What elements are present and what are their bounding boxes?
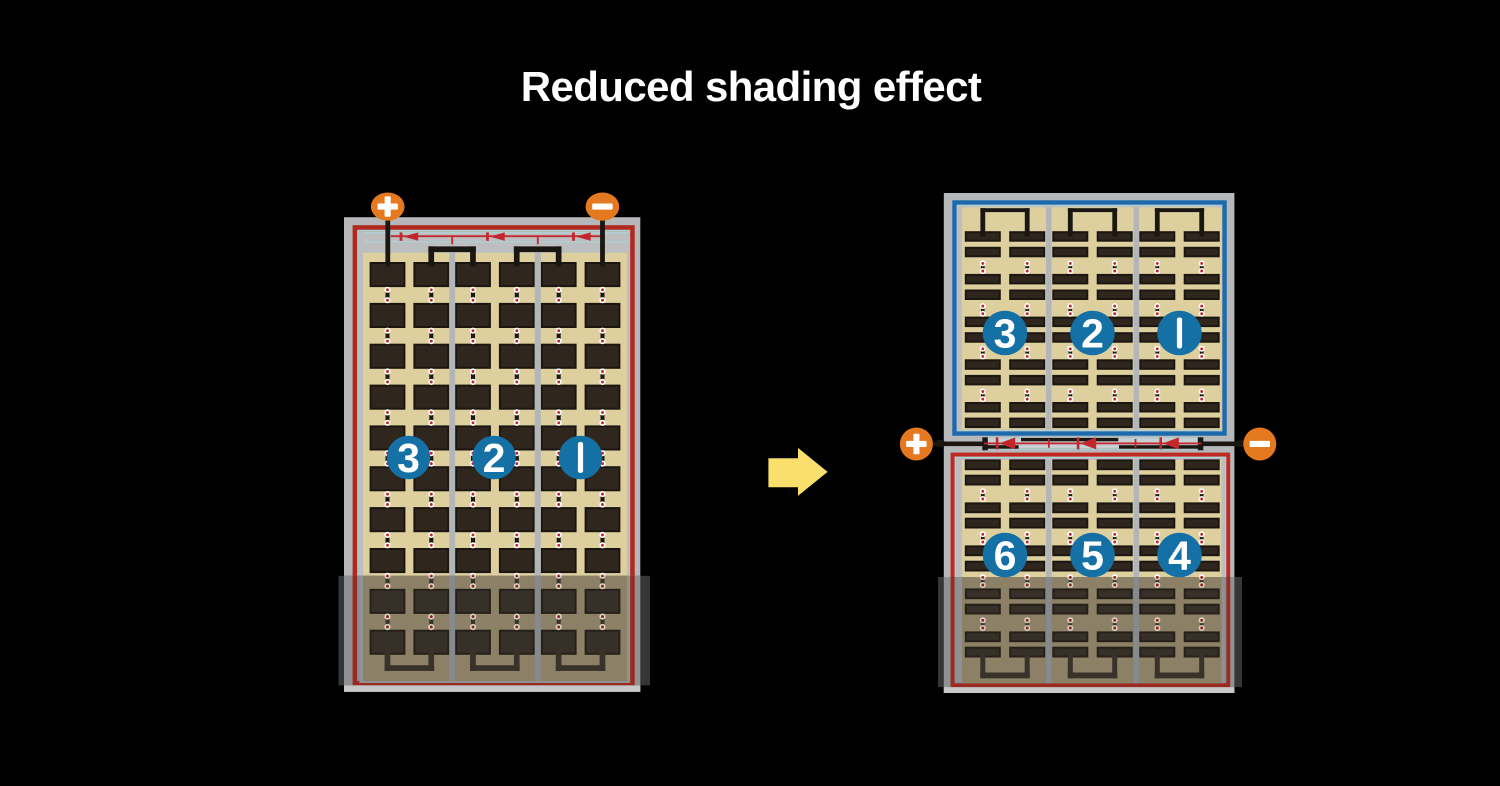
svg-text:2: 2	[1081, 311, 1104, 357]
svg-text:3: 3	[397, 435, 420, 481]
svg-text:6: 6	[994, 533, 1017, 579]
svg-text:5: 5	[1081, 533, 1104, 579]
svg-text:2: 2	[483, 435, 506, 481]
svg-text:3: 3	[994, 311, 1017, 357]
svg-text:Reduced shading effect: Reduced shading effect	[521, 63, 982, 110]
svg-text:4: 4	[1168, 533, 1191, 579]
